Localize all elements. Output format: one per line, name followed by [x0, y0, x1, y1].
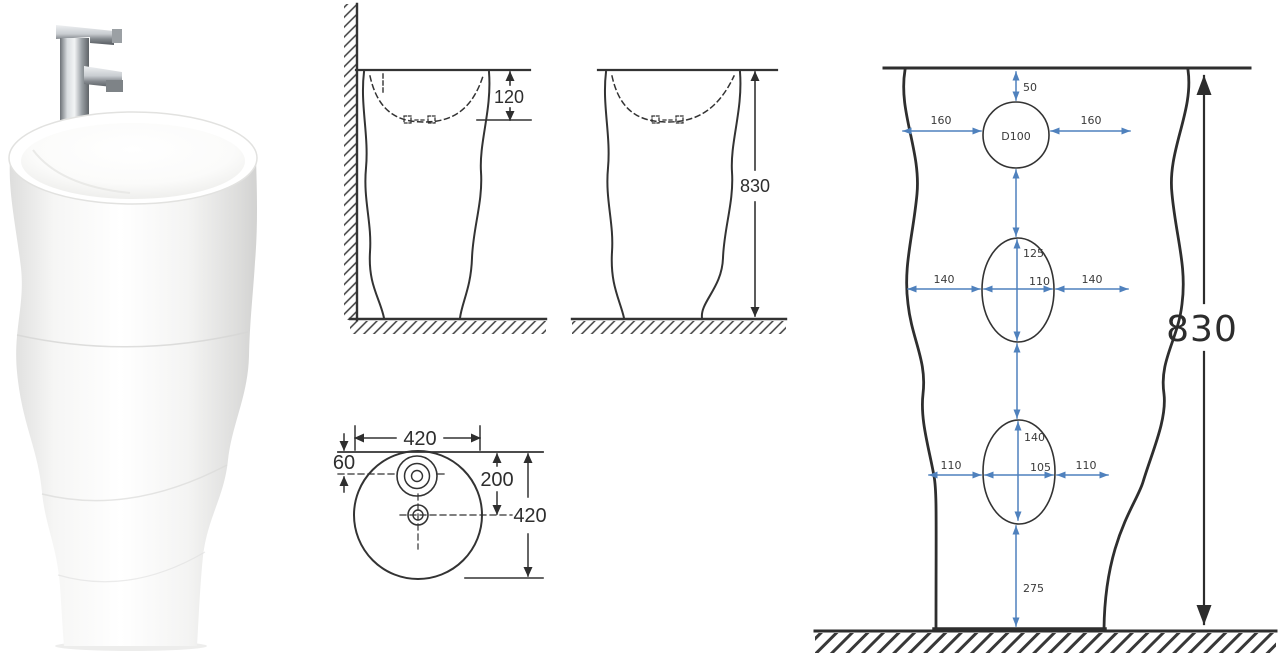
spec-sheet: 120 830 420 [0, 0, 1279, 654]
basin-bowl [21, 123, 245, 199]
side-view-free: 830 [572, 70, 786, 334]
label-275: 275 [1023, 582, 1044, 595]
label-125: 125 [1023, 247, 1044, 260]
dim-label-830: 830 [740, 176, 770, 196]
faucet-hole [397, 456, 437, 496]
dim-basin-depth: 120 [477, 72, 531, 120]
dim-label-420-depth: 420 [513, 505, 546, 527]
top-view: 420 60 200 [333, 426, 547, 579]
label-110-mid: 110 [1029, 275, 1050, 288]
label-faucet-hole-diameter: D100 [1001, 130, 1030, 143]
label-160-left: 160 [931, 114, 952, 127]
label-50: 50 [1023, 81, 1037, 94]
dim-faucet-offset: 60 [333, 434, 355, 492]
label-140-low: 140 [1024, 431, 1045, 444]
front-view: D100 50 160 160 125 110 140 140 140 105 … [815, 68, 1276, 653]
dim-label-420-top: 420 [403, 428, 436, 450]
label-105: 105 [1030, 461, 1051, 474]
dim-label-200: 200 [480, 469, 513, 491]
vessel-left-edge [904, 70, 936, 629]
hidden-bowl-outline [370, 76, 483, 122]
product-photo [9, 25, 257, 651]
label-140-right: 140 [1082, 273, 1103, 286]
hidden-bowl-outline [612, 76, 734, 122]
ground-hatch [815, 633, 1276, 653]
label-140-left: 140 [934, 273, 955, 286]
dim-label-120: 120 [494, 87, 524, 107]
vessel-left-edge [363, 72, 384, 318]
wall-hatch [344, 4, 357, 320]
dim-label-830: 830 [1166, 309, 1238, 350]
faucet-aerator [106, 80, 123, 92]
ground-hatch [350, 321, 546, 334]
vessel-right-edge [702, 72, 741, 318]
ground-hatch [572, 321, 786, 334]
dim-drain-offset: 200 [480, 454, 513, 514]
drain-hole [400, 494, 512, 549]
dim-top-width: 420 [355, 426, 480, 450]
dim-overall-height: 830 [1166, 76, 1238, 624]
dim-overall-height: 830 [740, 72, 770, 316]
basin-body [10, 158, 257, 646]
faucet-outer [397, 456, 437, 496]
label-110-right: 110 [1076, 459, 1097, 472]
label-110-left: 110 [941, 459, 962, 472]
diagram-canvas: 120 830 420 [0, 0, 1279, 654]
label-160-right: 160 [1081, 114, 1102, 127]
side-view-wall: 120 [344, 4, 546, 334]
dim-label-60: 60 [333, 452, 355, 474]
faucet-handle-tip [112, 29, 122, 43]
vessel-left-edge [605, 72, 624, 318]
